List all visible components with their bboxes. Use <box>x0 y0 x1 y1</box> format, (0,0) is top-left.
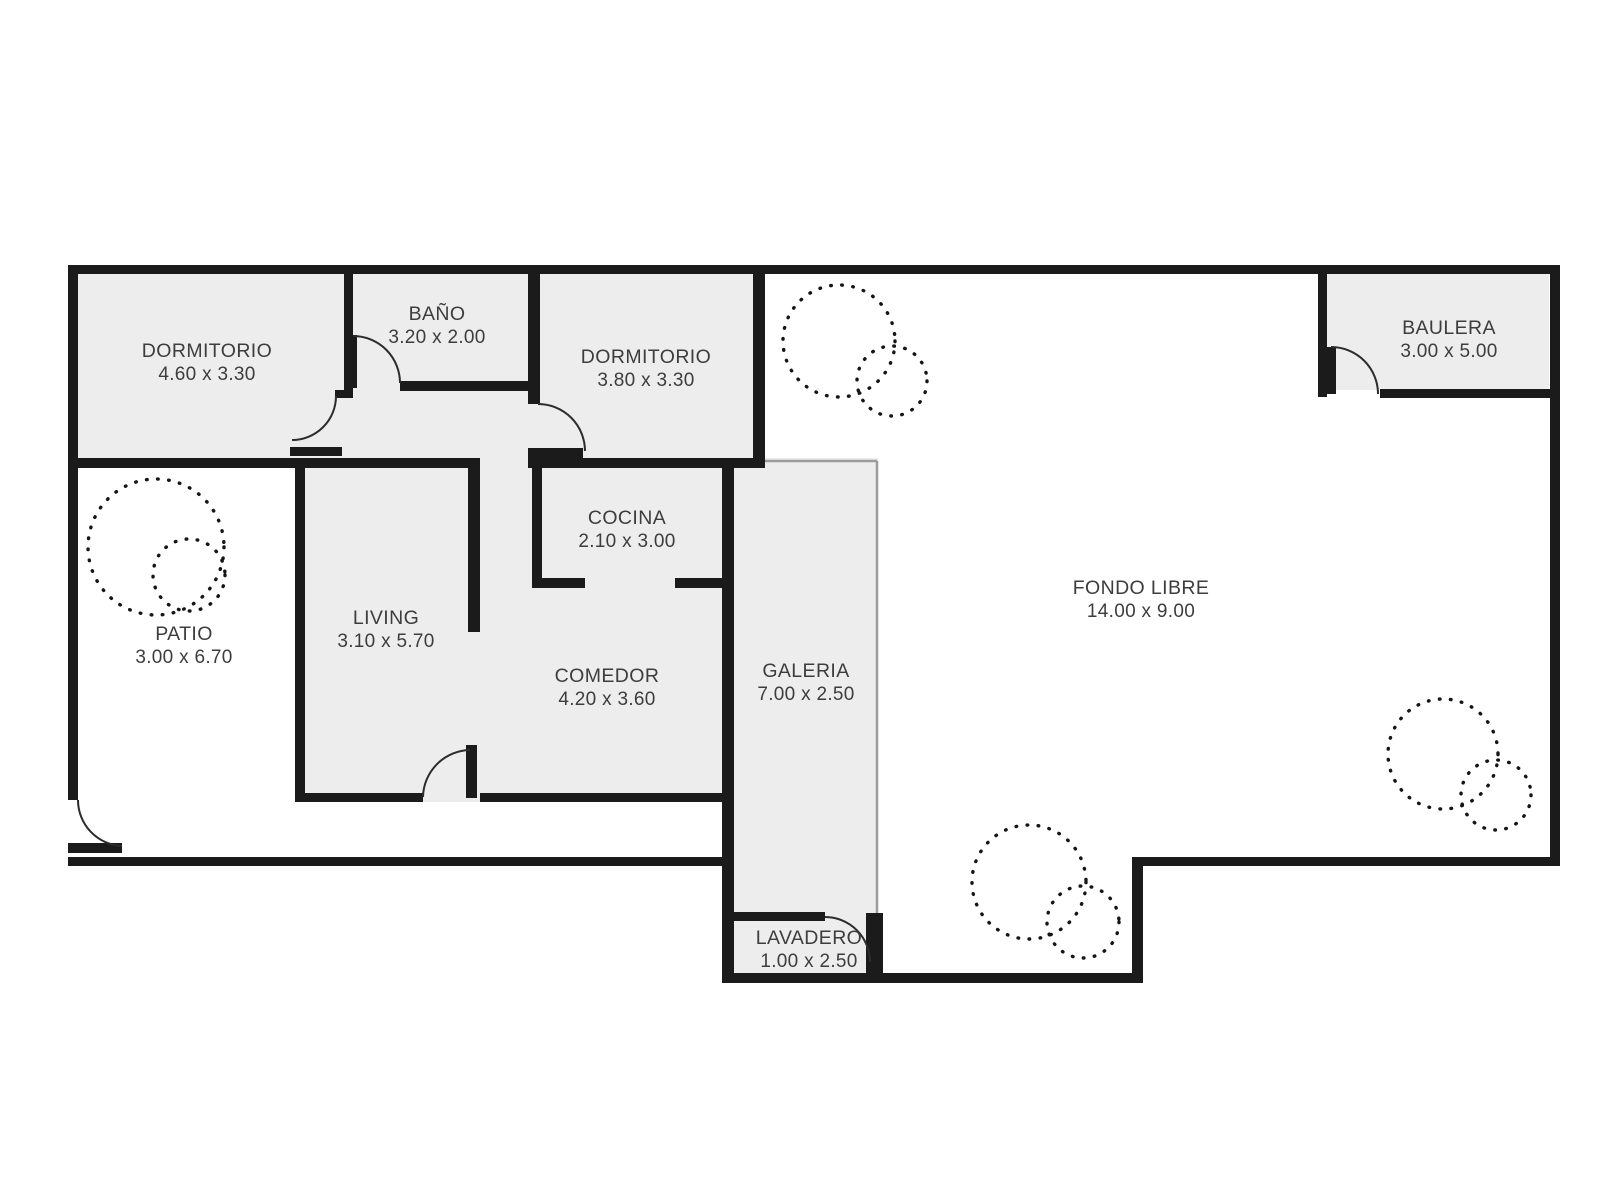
room-name-fondo-libre: FONDO LIBRE <box>1073 577 1210 599</box>
dorm2-bottom-cocina-top-wall <box>528 458 762 468</box>
bano-dorm2-divider-wall <box>528 265 540 404</box>
tree-symbol-fondo-upper <box>783 285 927 416</box>
tree-canopy-circle <box>783 285 895 397</box>
room-name-dormitorio-1: DORMITORIO <box>142 340 272 362</box>
tree-canopy-circle <box>153 539 225 611</box>
baulera-door-leaf <box>1327 347 1336 394</box>
baulera-left-wall <box>1318 265 1327 397</box>
dorm1-door-sill-wall <box>290 447 342 456</box>
tree-canopy-circle <box>88 479 224 615</box>
room-dims-dormitorio-2: 3.80 x 3.30 <box>597 370 694 391</box>
living-left-wall <box>295 458 305 802</box>
boundary-bottom-left-wall <box>68 857 734 866</box>
room-name-galeria: GALERIA <box>762 660 849 682</box>
tree-canopy-circle <box>1461 760 1531 830</box>
tree-canopy-circle <box>972 825 1086 939</box>
room-name-baulera: BAULERA <box>1402 317 1496 339</box>
living-bottom-wall <box>295 793 423 802</box>
room-name-patio: PATIO <box>155 623 213 645</box>
room-name-bano: BAÑO <box>409 301 466 325</box>
living-right-wall <box>468 458 480 632</box>
room-dims-dormitorio-1: 4.60 x 3.30 <box>158 364 255 385</box>
tree-canopy-circle <box>857 346 927 416</box>
tree-canopy-circle <box>1388 699 1498 809</box>
room-dims-baulera: 3.00 x 5.00 <box>1400 341 1497 362</box>
entry-door-arc <box>78 800 122 846</box>
corridor-left-wall <box>722 458 734 983</box>
room-name-cocina: COCINA <box>588 507 666 529</box>
comedor-door-leaf <box>466 745 477 798</box>
floor-plan: DORMITORIO4.60 x 3.30BAÑO3.20 x 2.00DORM… <box>0 0 1600 1200</box>
tree-symbol-fondo-right <box>1388 699 1531 830</box>
room-name-dormitorio-2: DORMITORIO <box>581 346 711 368</box>
baulera-bottom-wall <box>1380 389 1560 398</box>
cocina-bottom-right-wall <box>675 578 733 588</box>
dorm1-divider-stub-wall <box>335 390 353 398</box>
outer-right-wall <box>1550 265 1560 866</box>
boundary-step-wall <box>1132 857 1143 983</box>
room-dims-galeria: 7.00 x 2.50 <box>757 684 854 705</box>
room-label-fondo-libre: FONDO LIBRE14.00 x 9.00 <box>1073 577 1210 622</box>
dorm2-right-wall <box>753 265 765 468</box>
room-name-comedor: COMEDOR <box>555 665 660 687</box>
bano-door-leaf <box>349 335 357 388</box>
bano-bottom-wall <box>400 381 533 391</box>
tree-symbol-patio <box>88 479 225 615</box>
cocina-bottom-left-wall <box>532 578 585 588</box>
boundary-bottom-right-wall <box>1132 857 1560 866</box>
outer-top-wall <box>68 265 1560 274</box>
cocina-left-wall <box>532 458 542 588</box>
room-dims-fondo-libre: 14.00 x 9.00 <box>1087 601 1195 622</box>
floor-plan-page: DORMITORIO4.60 x 3.30BAÑO3.20 x 2.00DORM… <box>0 0 1600 1200</box>
outer-left-wall <box>68 265 78 800</box>
dorm2-door-sill-wall <box>528 448 583 458</box>
room-dims-comedor: 4.20 x 3.60 <box>558 689 655 710</box>
comedor-bottom-wall <box>480 793 733 802</box>
room-dims-bano: 3.20 x 2.00 <box>388 327 485 348</box>
room-dims-patio: 3.00 x 6.70 <box>135 647 232 668</box>
room-label-patio: PATIO3.00 x 6.70 <box>135 623 232 668</box>
room-dims-cocina: 2.10 x 3.00 <box>578 531 675 552</box>
room-name-living: LIVING <box>353 607 419 629</box>
boundary-notch-bottom-wall <box>722 973 1143 983</box>
room-dims-living: 3.10 x 5.70 <box>337 631 434 652</box>
tree-canopy-circle <box>1047 886 1119 958</box>
room-name-lavadero: LAVADERO <box>756 927 863 949</box>
dorm1-living-wall <box>68 458 478 468</box>
room-dims-lavadero: 1.00 x 2.50 <box>760 951 857 972</box>
tree-symbol-fondo-lower <box>972 825 1119 958</box>
lavadero-top-wall <box>734 912 825 921</box>
